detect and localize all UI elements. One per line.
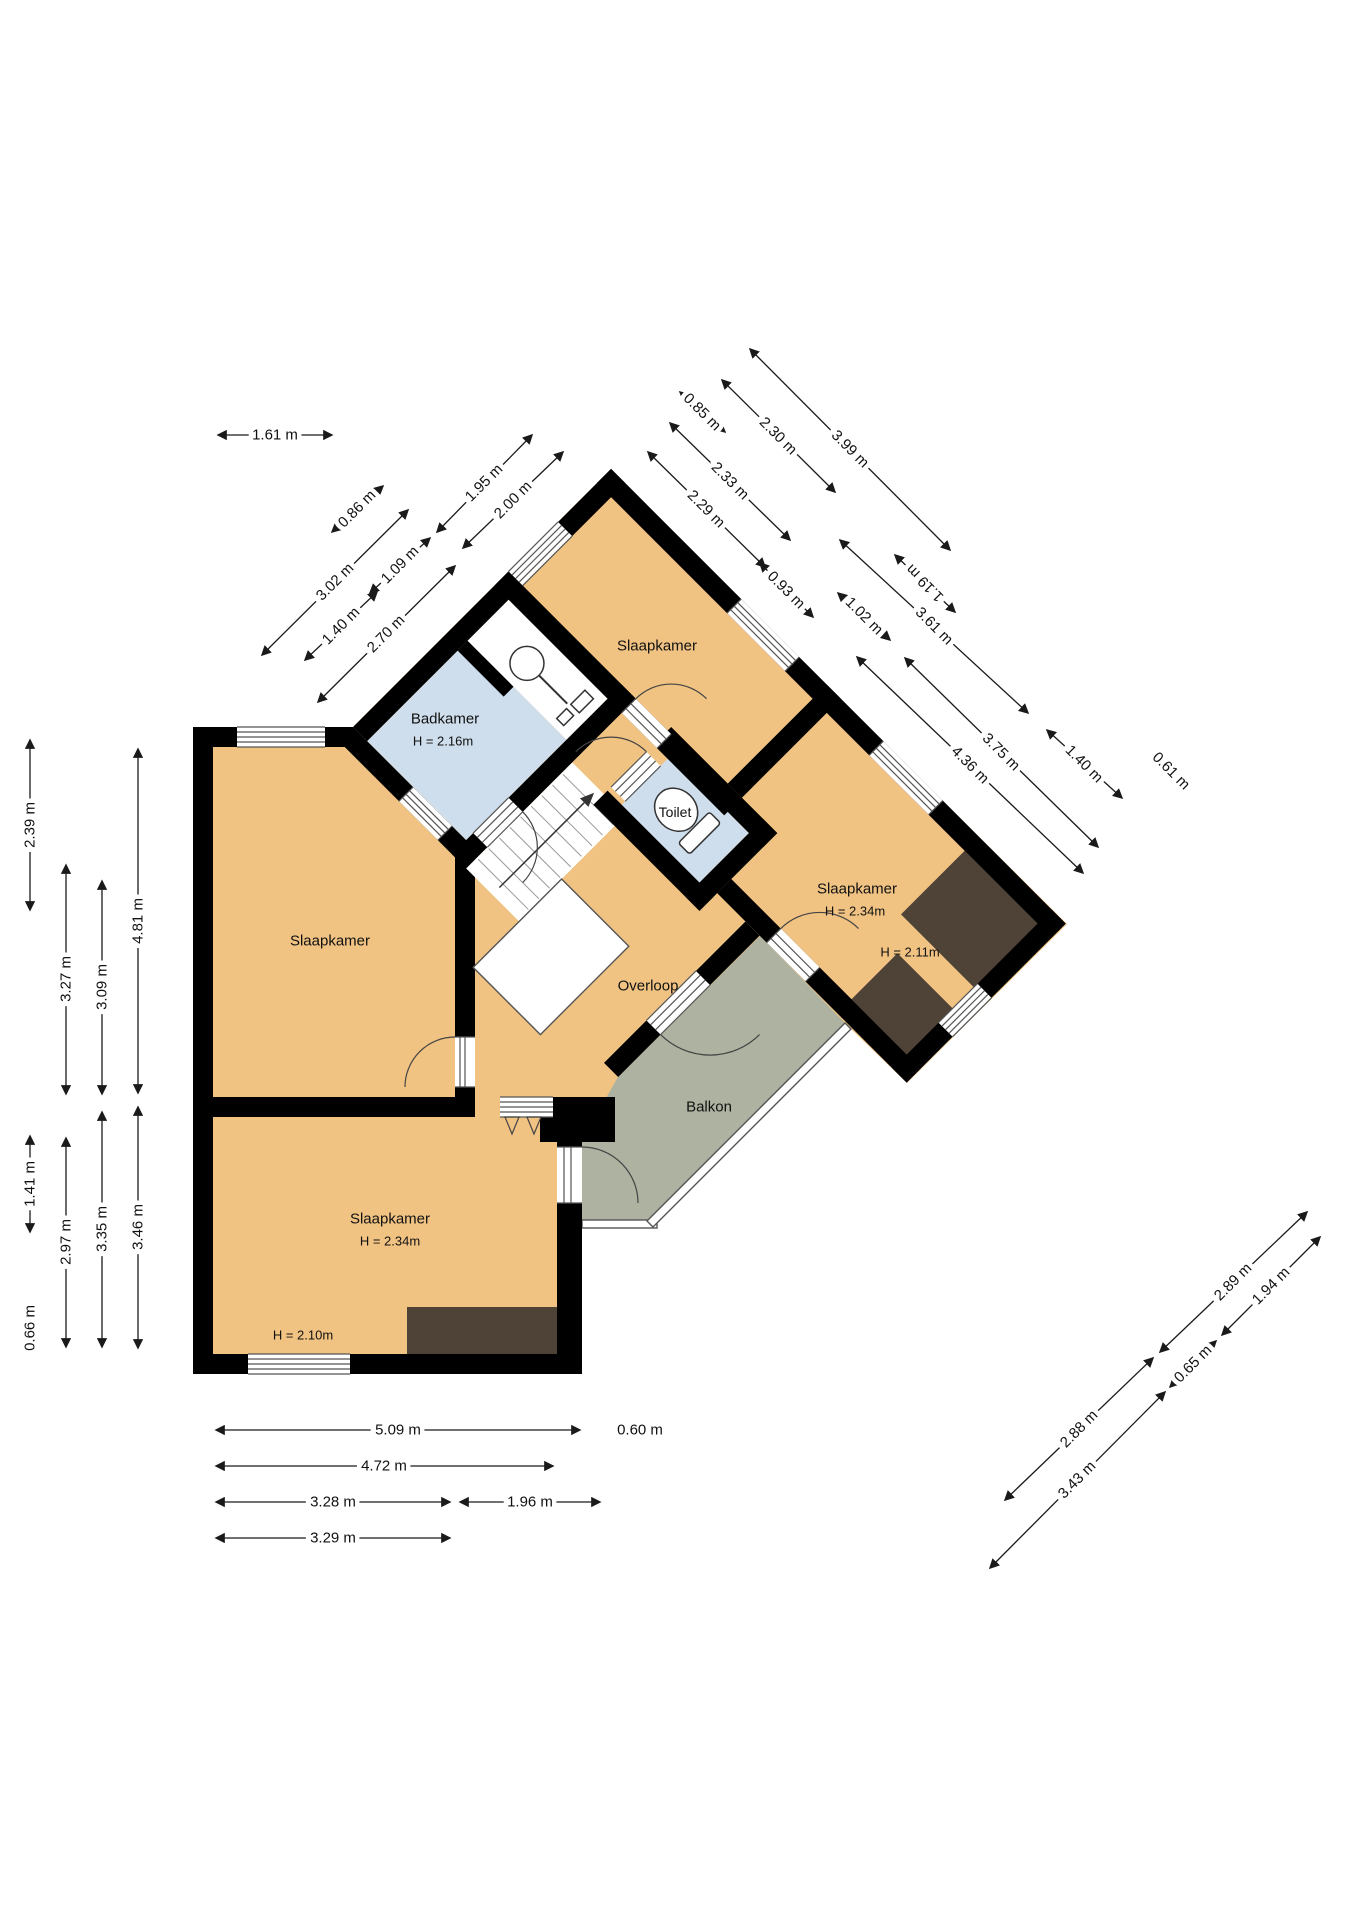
top-bedroom-label: Slaapkamer	[617, 638, 697, 655]
svg-text:0.65 m: 0.65 m	[1171, 1342, 1215, 1386]
svg-text:1.61 m: 1.61 m	[252, 427, 298, 444]
svg-text:4.81 m: 4.81 m	[130, 898, 147, 944]
svg-text:1.19 m: 1.19 m	[903, 561, 947, 605]
svg-text:1.09 m: 1.09 m	[378, 543, 422, 587]
svg-text:0.86 m: 0.86 m	[335, 487, 379, 531]
wall-mid	[193, 1097, 475, 1117]
left-bedroom-label: Slaapkamer	[290, 933, 370, 950]
dimension: 3.28 m	[216, 1494, 450, 1511]
svg-text:1.41 m: 1.41 m	[22, 1161, 39, 1207]
dimension: 4.81 m	[130, 749, 147, 1093]
dimension: 1.09 m	[370, 538, 430, 593]
svg-text:2.70 m: 2.70 m	[364, 612, 408, 656]
svg-text:3.43 m: 3.43 m	[1055, 1458, 1099, 1502]
dimension: 0.93 m	[760, 563, 813, 617]
svg-text:2.00 m: 2.00 m	[491, 478, 535, 522]
dimension: 1.02 m	[838, 593, 890, 640]
svg-text:2.33 m: 2.33 m	[708, 459, 752, 503]
dimension: 0.61 m	[1149, 749, 1193, 793]
dimension: 0.85 m	[680, 390, 725, 434]
svg-text:1.02 m: 1.02 m	[842, 594, 886, 638]
svg-text:2.39 m: 2.39 m	[22, 802, 39, 848]
dimension: 5.09 m	[216, 1422, 580, 1439]
toilet-label: Toilet	[659, 804, 692, 820]
dimension: 0.65 m	[1170, 1341, 1216, 1387]
svg-text:1.96 m: 1.96 m	[507, 1494, 553, 1511]
dimension: 1.61 m	[218, 427, 332, 444]
dimension: 3.46 m	[130, 1107, 147, 1348]
dimension: 0.86 m	[332, 486, 383, 532]
balcony-label: Balkon	[686, 1099, 732, 1116]
dimension: 0.60 m	[617, 1422, 663, 1439]
dimension: 2.30 m	[722, 380, 835, 492]
wall-left	[193, 727, 213, 1374]
bathroom-label: Badkamer	[411, 711, 479, 728]
svg-text:4.72 m: 4.72 m	[361, 1458, 407, 1475]
dimension: 3.09 m	[94, 881, 111, 1094]
dimension: 1.19 m	[895, 555, 955, 612]
svg-text:4.36 m: 4.36 m	[948, 743, 992, 787]
svg-text:2.89 m: 2.89 m	[1211, 1260, 1255, 1304]
svg-text:0.93 m: 0.93 m	[764, 568, 808, 612]
bottom-bedroom-height: H = 2.34m	[360, 1234, 420, 1249]
dimension: 2.97 m	[58, 1138, 75, 1347]
svg-text:3.27 m: 3.27 m	[58, 956, 75, 1002]
svg-text:3.46 m: 3.46 m	[130, 1204, 147, 1250]
dimension: 2.39 m	[22, 740, 39, 910]
svg-text:5.09 m: 5.09 m	[375, 1422, 421, 1439]
bathroom-height: H = 2.16m	[413, 734, 473, 749]
dimension: 3.29 m	[216, 1530, 450, 1547]
dimension: 0.66 m	[22, 1305, 39, 1352]
svg-text:3.28 m: 3.28 m	[310, 1494, 356, 1511]
svg-text:2.88 m: 2.88 m	[1057, 1407, 1101, 1451]
svg-text:1.94 m: 1.94 m	[1249, 1264, 1293, 1308]
floor-plan-canvas: Badkamer H = 2.16m Slaapkamer Toilet Sla…	[0, 0, 1358, 1920]
right-bedroom-height2: H = 2.11m	[880, 945, 939, 960]
svg-text:1.40 m: 1.40 m	[319, 604, 363, 648]
balcony-railing-south	[582, 1220, 657, 1228]
dimension: 1.96 m	[460, 1494, 600, 1511]
svg-text:0.60 m: 0.60 m	[617, 1422, 663, 1439]
svg-text:2.29 m: 2.29 m	[684, 487, 728, 531]
dimension: 4.72 m	[216, 1458, 553, 1475]
dimension: 3.27 m	[58, 865, 75, 1094]
svg-text:3.61 m: 3.61 m	[912, 604, 956, 648]
svg-text:2.30 m: 2.30 m	[756, 414, 800, 458]
svg-text:2.97 m: 2.97 m	[58, 1219, 75, 1265]
window-top	[237, 727, 325, 747]
bottom-bedroom-height2: H = 2.10m	[273, 1328, 333, 1343]
svg-text:3.29 m: 3.29 m	[310, 1530, 356, 1547]
right-bedroom-height: H = 2.34m	[825, 904, 885, 919]
svg-text:3.35 m: 3.35 m	[94, 1206, 111, 1252]
low-ceiling-bottom	[407, 1307, 557, 1354]
landing-label: Overloop	[618, 978, 679, 995]
svg-text:0.66 m: 0.66 m	[22, 1305, 39, 1351]
svg-text:0.61 m: 0.61 m	[1149, 749, 1193, 793]
svg-text:3.99 m: 3.99 m	[828, 427, 872, 471]
window-bottom	[248, 1354, 350, 1374]
svg-text:3.02 m: 3.02 m	[313, 560, 357, 604]
right-bedroom-label: Slaapkamer	[817, 881, 897, 898]
dimension: 3.35 m	[94, 1112, 111, 1347]
svg-text:0.85 m: 0.85 m	[680, 390, 724, 434]
dimension: 1.40 m	[1047, 730, 1122, 798]
svg-text:1.95 m: 1.95 m	[462, 461, 506, 505]
bottom-bedroom-label: Slaapkamer	[350, 1211, 430, 1228]
dimension: 1.41 m	[22, 1136, 39, 1232]
svg-text:1.40 m: 1.40 m	[1062, 742, 1106, 786]
svg-text:3.09 m: 3.09 m	[94, 964, 111, 1010]
